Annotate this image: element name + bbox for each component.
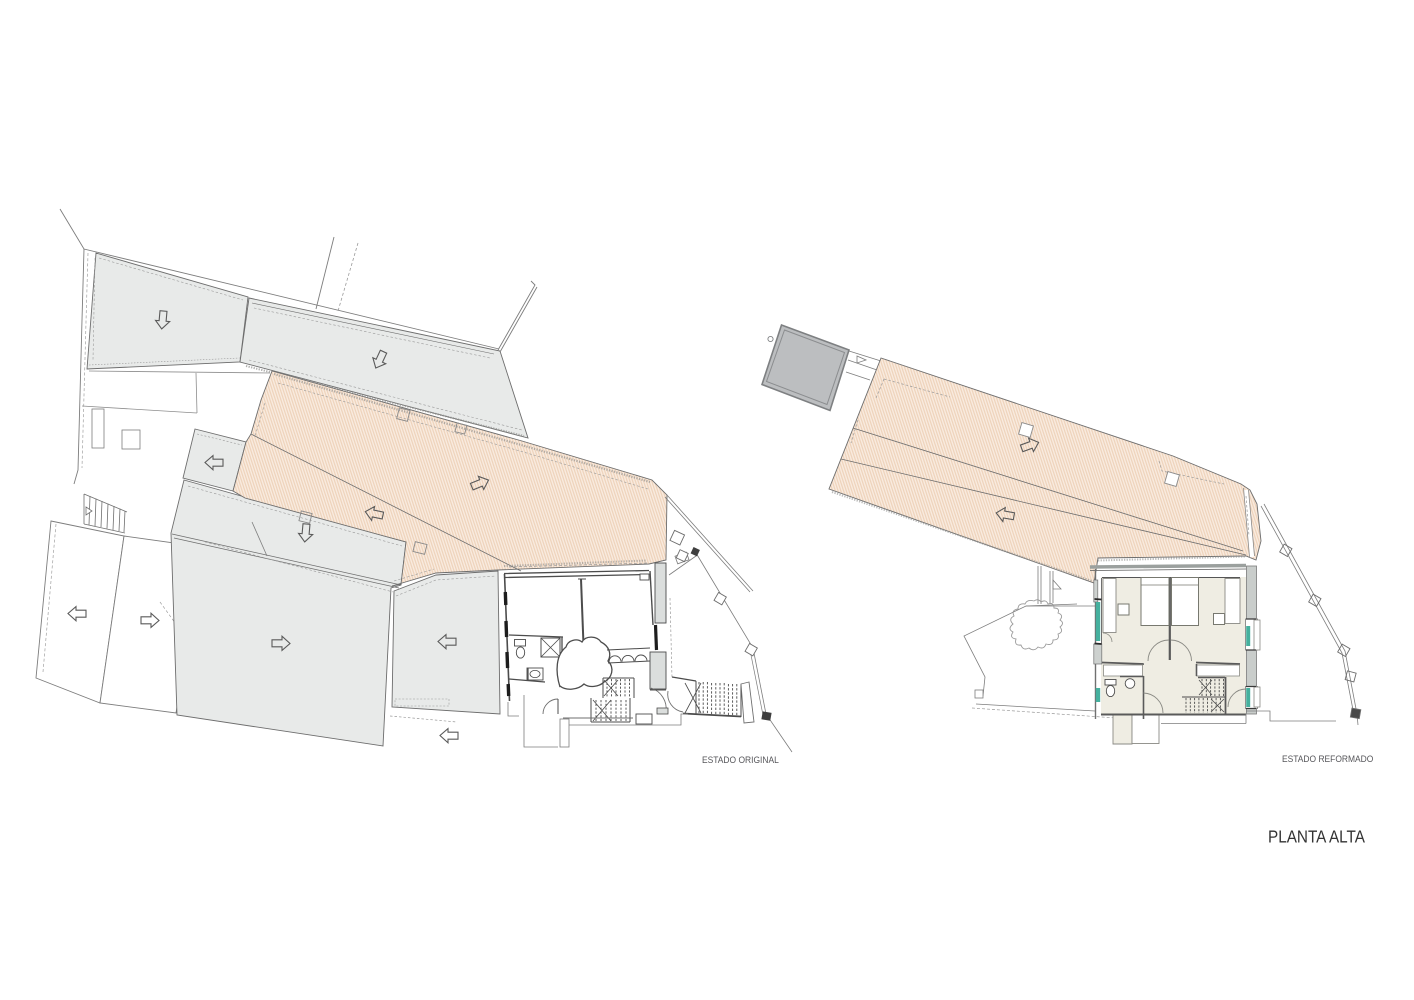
svg-text:ESTADO ORIGINAL: ESTADO ORIGINAL — [702, 755, 779, 765]
svg-text:ESTADO REFORMADO: ESTADO REFORMADO — [1282, 754, 1374, 764]
svg-text:PLANTA ALTA: PLANTA ALTA — [1268, 826, 1366, 846]
